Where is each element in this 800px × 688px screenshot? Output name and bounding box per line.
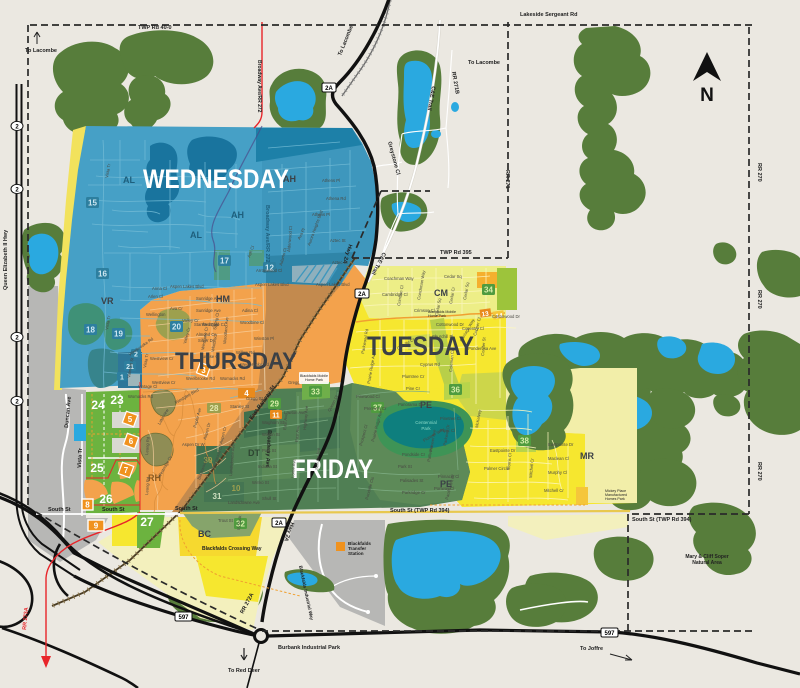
svg-text:Mitchell Cr: Mitchell Cr <box>544 488 564 493</box>
svg-text:Churchill Pl: Churchill Pl <box>432 334 453 339</box>
svg-text:Winston Pl: Winston Pl <box>254 336 274 341</box>
svg-text:Natural Area: Natural Area <box>692 560 722 566</box>
svg-text:Shull St: Shull St <box>262 496 277 501</box>
svg-text:Coachman Way: Coachman Way <box>384 276 415 281</box>
svg-text:AL: AL <box>190 230 202 240</box>
svg-text:Stanley St: Stanley St <box>230 404 250 409</box>
svg-text:Broadway Ave/RR 272: Broadway Ave/RR 272 <box>264 205 270 263</box>
svg-text:VR: VR <box>101 296 114 306</box>
svg-text:Queen Elizabeth II Hwy: Queen Elizabeth II Hwy <box>3 229 9 290</box>
svg-text:24: 24 <box>91 398 105 412</box>
svg-text:19: 19 <box>114 330 123 339</box>
svg-text:Wilson St: Wilson St <box>262 432 281 437</box>
svg-text:Almond Cr: Almond Cr <box>196 332 216 337</box>
svg-text:17: 17 <box>220 257 229 266</box>
svg-text:Landsdowne Ave: Landsdowne Ave <box>228 500 260 505</box>
svg-text:Park St: Park St <box>262 448 277 453</box>
svg-text:RR 271: RR 271 <box>504 170 510 189</box>
svg-text:Homes Park: Homes Park <box>605 497 625 501</box>
svg-text:Gregg St: Gregg St <box>246 396 264 401</box>
svg-text:Aspen Lakes Blvd: Aspen Lakes Blvd <box>255 282 289 287</box>
svg-text:Home Park: Home Park <box>305 378 323 382</box>
svg-text:Pondside Cr: Pondside Cr <box>402 452 426 457</box>
svg-text:Aztec St: Aztec St <box>330 238 346 243</box>
svg-text:N: N <box>700 85 714 106</box>
svg-text:7: 7 <box>124 466 129 475</box>
svg-text:13: 13 <box>481 310 490 318</box>
svg-text:RR 270: RR 270 <box>756 290 762 309</box>
svg-text:2A: 2A <box>325 86 333 92</box>
svg-text:Aztec Cr: Aztec Cr <box>332 260 349 265</box>
svg-text:WEDNESDAY: WEDNESDAY <box>143 164 289 194</box>
svg-text:Centennial: Centennial <box>415 420 437 425</box>
svg-text:Arlen Cl: Arlen Cl <box>148 294 163 299</box>
svg-text:Blackfalds Crossing Way: Blackfalds Crossing Way <box>202 546 262 552</box>
svg-text:Eastpointe Dr: Eastpointe Dr <box>490 448 516 453</box>
svg-text:9: 9 <box>94 522 99 531</box>
svg-text:Woodbine Cl: Woodbine Cl <box>240 320 264 325</box>
svg-text:Cyprus Rd: Cyprus Rd <box>420 362 440 367</box>
svg-text:16: 16 <box>98 270 107 279</box>
svg-text:15: 15 <box>88 199 97 208</box>
svg-text:Plumtree Cr: Plumtree Cr <box>402 374 425 379</box>
svg-text:Cedar Sq: Cedar Sq <box>444 274 462 279</box>
svg-text:Pine Cr: Pine Cr <box>406 386 421 391</box>
svg-text:10: 10 <box>232 484 241 493</box>
svg-text:Willow Rd: Willow Rd <box>236 350 255 355</box>
svg-text:TUESDAY: TUESDAY <box>367 331 474 361</box>
svg-text:Ava Cr: Ava Cr <box>170 306 183 311</box>
svg-text:5: 5 <box>128 415 133 424</box>
svg-text:TWP Rd 40-0: TWP Rd 40-0 <box>138 25 172 31</box>
svg-text:597: 597 <box>178 615 189 621</box>
svg-text:AH: AH <box>283 174 296 184</box>
svg-text:33: 33 <box>311 388 320 397</box>
svg-text:Lakeside Sergeant Rd: Lakeside Sergeant Rd <box>520 12 577 18</box>
svg-text:Aspen Lakes Blvd: Aspen Lakes Blvd <box>170 284 204 289</box>
svg-text:Pinewood Cl: Pinewood Cl <box>356 394 380 399</box>
svg-text:Crimson Cl: Crimson Cl <box>414 308 435 313</box>
svg-text:MR: MR <box>580 451 594 461</box>
svg-text:Silver Dr: Silver Dr <box>198 338 215 343</box>
svg-text:36: 36 <box>451 386 460 395</box>
svg-text:To Joffre: To Joffre <box>580 646 603 652</box>
svg-text:Station: Station <box>348 551 364 556</box>
svg-text:To Lacombe: To Lacombe <box>25 48 57 54</box>
svg-text:Arrowwood Cl: Arrowwood Cl <box>256 268 282 273</box>
svg-text:Womacks Rd: Womacks Rd <box>128 394 153 399</box>
svg-text:Parkridge Cr: Parkridge Cr <box>402 490 426 495</box>
svg-text:Cambridge Cl: Cambridge Cl <box>382 292 408 297</box>
svg-text:Vista Tr: Vista Tr <box>77 447 84 468</box>
svg-text:28: 28 <box>210 404 219 413</box>
svg-text:Sunridge Ave: Sunridge Ave <box>196 296 222 301</box>
svg-text:RR 270: RR 270 <box>756 163 762 182</box>
svg-text:Sunrise Cl: Sunrise Cl <box>200 354 219 359</box>
svg-text:Womacks Rd: Womacks Rd <box>220 376 245 381</box>
svg-text:Aspen Lakes Blvd: Aspen Lakes Blvd <box>316 282 350 287</box>
svg-text:Westview Cr: Westview Cr <box>150 356 174 361</box>
svg-text:To Red Deer: To Red Deer <box>228 668 261 674</box>
svg-text:Premiers Cr: Premiers Cr <box>364 406 387 411</box>
svg-text:Athens Pl: Athens Pl <box>322 178 340 183</box>
svg-text:DT: DT <box>248 448 260 458</box>
svg-text:TWP Rd 395: TWP Rd 395 <box>440 250 472 256</box>
svg-text:Park: Park <box>421 426 431 431</box>
svg-text:Weelbrooke Rd: Weelbrooke Rd <box>240 362 269 367</box>
svg-text:2A: 2A <box>275 521 283 527</box>
svg-text:Anna Cl: Anna Cl <box>152 286 167 291</box>
svg-text:Cottonwood Dr: Cottonwood Dr <box>492 314 521 319</box>
svg-text:South St (TWP Rd 394): South St (TWP Rd 394) <box>390 508 450 514</box>
svg-text:Trout St: Trout St <box>218 518 234 523</box>
svg-text:Sunridge Ave: Sunridge Ave <box>196 308 222 313</box>
svg-text:Westview Cr: Westview Cr <box>152 380 176 385</box>
svg-text:Panorama Dr: Panorama Dr <box>398 402 424 407</box>
svg-text:Wellington: Wellington <box>146 312 166 317</box>
svg-text:38: 38 <box>520 437 529 446</box>
svg-text:Winko St: Winko St <box>252 480 270 485</box>
svg-text:AH: AH <box>231 210 244 220</box>
svg-text:8: 8 <box>85 501 90 510</box>
svg-text:1: 1 <box>120 375 124 382</box>
svg-text:Aspen Dr W: Aspen Dr W <box>182 442 205 447</box>
svg-text:Indiana St: Indiana St <box>258 464 278 469</box>
svg-text:Adina Cl: Adina Cl <box>242 308 258 313</box>
svg-text:South St: South St <box>48 507 71 513</box>
svg-text:597: 597 <box>604 631 615 637</box>
svg-text:AL: AL <box>123 175 135 185</box>
svg-text:Coventry Cl: Coventry Cl <box>462 326 484 331</box>
svg-text:Pinetree Cl: Pinetree Cl <box>440 416 461 421</box>
svg-text:RR 270: RR 270 <box>756 462 762 481</box>
svg-text:Waghorn St: Waghorn St <box>262 420 285 425</box>
svg-text:BC: BC <box>198 529 211 539</box>
svg-text:South St: South St <box>102 507 125 513</box>
svg-text:To Lacombe: To Lacombe <box>468 60 500 66</box>
svg-text:11: 11 <box>272 413 280 420</box>
svg-text:18: 18 <box>86 326 95 335</box>
svg-text:FRIDAY: FRIDAY <box>292 454 373 484</box>
svg-text:Athena Rd: Athena Rd <box>326 196 346 201</box>
svg-text:27: 27 <box>140 515 154 529</box>
svg-text:Park St: Park St <box>398 464 413 469</box>
svg-text:2A: 2A <box>358 292 366 298</box>
svg-text:South St (TWP Rd 394): South St (TWP Rd 394) <box>632 517 692 523</box>
svg-text:Weelbrooke Rd: Weelbrooke Rd <box>186 376 215 381</box>
svg-text:34: 34 <box>484 286 493 295</box>
svg-text:29: 29 <box>270 400 279 409</box>
svg-text:Murphy Cl: Murphy Cl <box>548 470 567 475</box>
svg-text:23: 23 <box>110 393 124 407</box>
svg-text:20: 20 <box>172 323 181 332</box>
svg-text:31: 31 <box>213 492 222 501</box>
svg-text:Cottonwood Dr: Cottonwood Dr <box>436 322 465 327</box>
svg-text:Burbank Industrial Park: Burbank Industrial Park <box>278 645 341 651</box>
svg-text:South St: South St <box>175 506 198 512</box>
svg-text:Palisades St: Palisades St <box>400 478 424 483</box>
svg-text:26: 26 <box>99 492 113 506</box>
svg-text:Broadway Ave/RR 272: Broadway Ave/RR 272 <box>256 60 262 113</box>
svg-text:Maclean Cl: Maclean Cl <box>548 456 569 461</box>
svg-text:Eastpointe Dr: Eastpointe Dr <box>548 442 574 447</box>
svg-text:CM: CM <box>434 288 448 298</box>
svg-text:25: 25 <box>90 461 104 475</box>
svg-text:6: 6 <box>129 437 134 446</box>
svg-text:Pinnacle Cl: Pinnacle Cl <box>438 474 459 479</box>
